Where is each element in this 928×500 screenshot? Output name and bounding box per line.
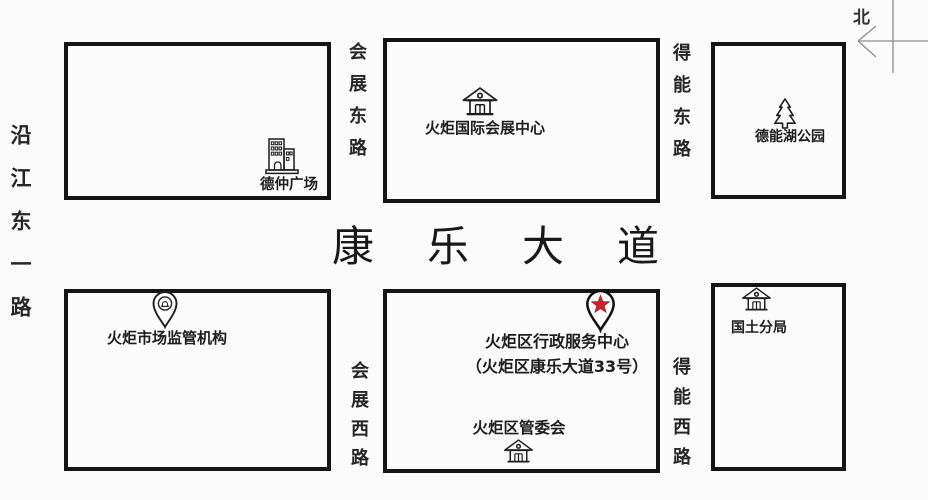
road-label-dene-west: 得能西路 [671, 357, 689, 477]
poi-label-exhibition-center: 火炬国际会展中心 [425, 120, 545, 137]
block-market-regulator [64, 289, 331, 471]
sketch-location-map: 沿江东一路 会展东路 得能东路 会展西路 得能西路 康乐大道 北 德仲广场 [0, 0, 928, 500]
road-label-kangle-avenue: 康乐大道 [332, 226, 712, 268]
map-pin-icon [150, 291, 180, 329]
pine-tree-icon [772, 98, 798, 129]
block-land-bureau [711, 283, 846, 471]
north-arrow-icon [845, 0, 928, 80]
poi-label-management-committee: 火炬区管委会 [472, 420, 565, 438]
poi-address-admin-service-center: （火炬区康乐大道33号） [466, 358, 648, 376]
road-label-dene-east: 得能东路 [671, 43, 689, 171]
poi-label-denenghu-park: 德能湖公园 [755, 129, 825, 145]
poi-label-land-bureau: 国土分局 [731, 320, 787, 336]
office-building-icon [261, 136, 303, 180]
road-label-yanjiang-east-1st: 沿江东一路 [9, 124, 30, 339]
road-label-huizhan-west: 会展西路 [349, 361, 367, 477]
hall-icon [740, 286, 773, 314]
hall-icon [502, 438, 535, 466]
hall-icon [460, 86, 500, 119]
road-label-huizhan-east: 会展东路 [347, 42, 365, 170]
poi-label-admin-service-center: 火炬区行政服务中心 [485, 333, 629, 351]
star-pin-icon [583, 290, 618, 333]
poi-label-market-regulator: 火炬市场监管机构 [107, 330, 227, 347]
poi-label-dezhong-plaza: 德仲广场 [260, 177, 318, 194]
